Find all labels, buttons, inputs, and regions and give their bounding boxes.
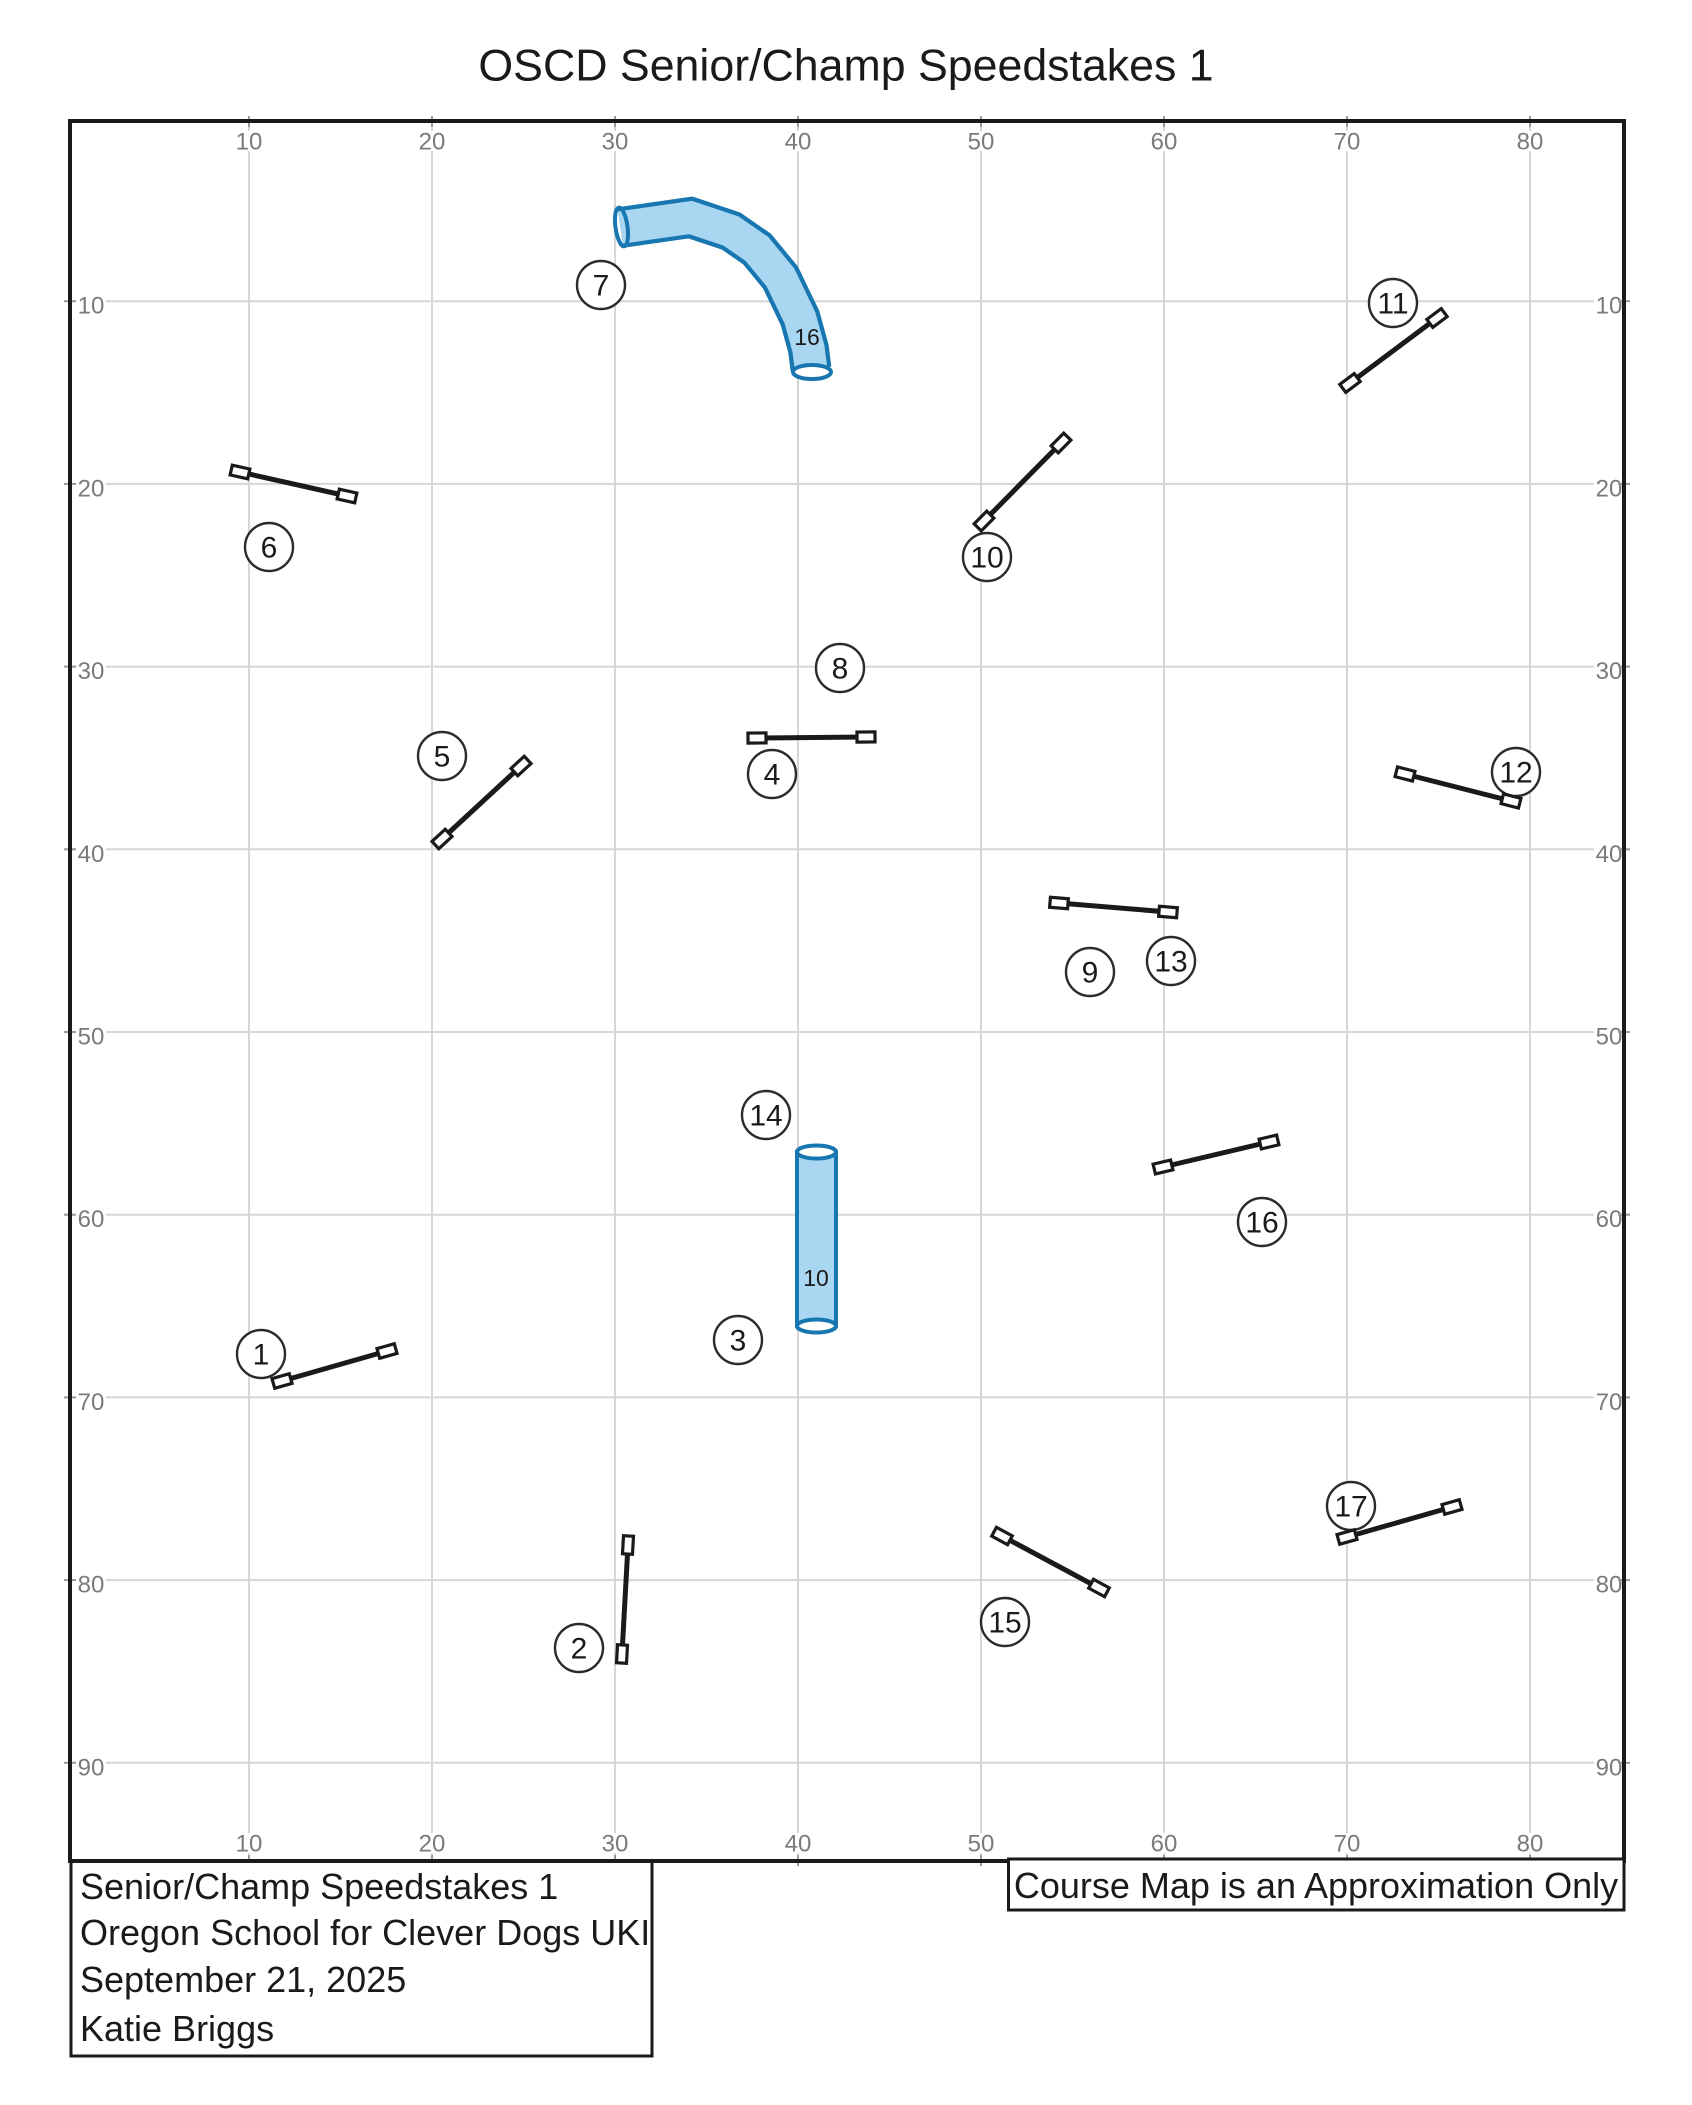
svg-text:10: 10: [236, 129, 263, 156]
svg-text:5: 5: [434, 741, 451, 774]
svg-text:2: 2: [571, 1633, 588, 1666]
svg-text:Oregon School for Clever Dogs: Oregon School for Clever Dogs UKI: [80, 1912, 650, 1953]
svg-text:12: 12: [1499, 757, 1532, 790]
svg-text:30: 30: [78, 658, 105, 685]
svg-text:10: 10: [1596, 293, 1623, 320]
svg-text:80: 80: [1596, 1572, 1623, 1599]
svg-text:40: 40: [785, 129, 812, 156]
svg-text:8: 8: [832, 653, 849, 686]
svg-text:60: 60: [1151, 129, 1178, 156]
svg-text:30: 30: [602, 129, 629, 156]
svg-text:70: 70: [1334, 129, 1361, 156]
svg-text:90: 90: [78, 1754, 105, 1781]
svg-text:60: 60: [78, 1206, 105, 1233]
svg-text:20: 20: [419, 129, 446, 156]
svg-text:30: 30: [602, 1831, 629, 1858]
svg-text:September 21, 2025: September 21, 2025: [80, 1959, 406, 2000]
svg-text:OSCD Senior/Champ Speedstakes: OSCD Senior/Champ Speedstakes 1: [478, 42, 1213, 91]
svg-text:1: 1: [253, 1339, 270, 1372]
svg-text:20: 20: [78, 475, 105, 502]
svg-text:13: 13: [1154, 946, 1187, 979]
svg-text:10: 10: [970, 542, 1003, 575]
svg-text:50: 50: [1596, 1024, 1623, 1051]
svg-text:50: 50: [78, 1024, 105, 1051]
svg-text:80: 80: [78, 1572, 105, 1599]
svg-text:90: 90: [1596, 1754, 1623, 1781]
svg-text:50: 50: [968, 1831, 995, 1858]
svg-text:80: 80: [1517, 1831, 1544, 1858]
svg-text:15: 15: [988, 1607, 1021, 1640]
svg-text:30: 30: [1596, 658, 1623, 685]
svg-text:40: 40: [785, 1831, 812, 1858]
svg-text:60: 60: [1596, 1206, 1623, 1233]
svg-text:9: 9: [1082, 957, 1099, 990]
svg-text:10: 10: [236, 1831, 263, 1858]
svg-text:6: 6: [261, 532, 278, 565]
svg-text:60: 60: [1151, 1831, 1178, 1858]
svg-text:Senior/Champ Speedstakes 1: Senior/Champ Speedstakes 1: [80, 1866, 558, 1907]
svg-text:40: 40: [1596, 841, 1623, 868]
svg-text:Course Map is an Approximation: Course Map is an Approximation Only: [1014, 1865, 1618, 1906]
svg-text:10: 10: [803, 1265, 829, 1291]
svg-text:70: 70: [1596, 1389, 1623, 1416]
svg-text:11: 11: [1377, 288, 1408, 321]
svg-text:40: 40: [78, 841, 105, 868]
svg-text:4: 4: [764, 759, 781, 792]
svg-text:17: 17: [1334, 1491, 1367, 1524]
svg-text:70: 70: [1334, 1831, 1361, 1858]
svg-text:7: 7: [593, 270, 610, 303]
svg-text:10: 10: [78, 293, 105, 320]
svg-text:Katie Briggs: Katie Briggs: [80, 2008, 274, 2049]
svg-text:14: 14: [749, 1100, 782, 1133]
svg-text:70: 70: [78, 1389, 105, 1416]
svg-text:16: 16: [1245, 1207, 1278, 1240]
svg-text:50: 50: [968, 129, 995, 156]
svg-text:20: 20: [419, 1831, 446, 1858]
svg-text:20: 20: [1596, 475, 1623, 502]
svg-text:16: 16: [794, 324, 820, 350]
svg-text:3: 3: [730, 1325, 747, 1358]
svg-text:80: 80: [1517, 129, 1544, 156]
